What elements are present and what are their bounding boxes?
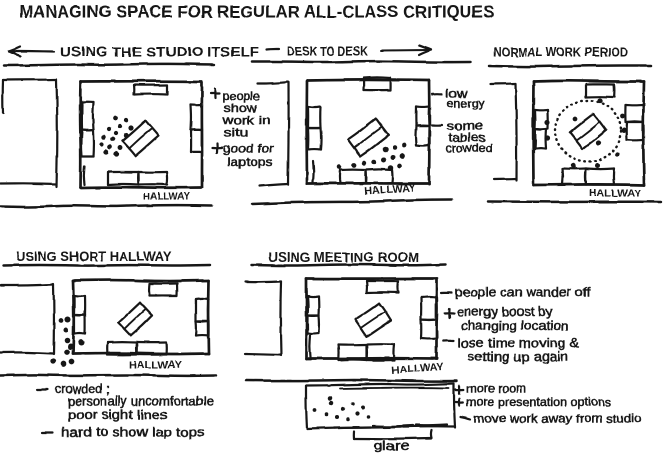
svg-text:move work away from studio: move work away from studio: [474, 412, 642, 426]
svg-text:setting up again: setting up again: [468, 350, 569, 364]
svg-text:more presentation options: more presentation options: [466, 395, 611, 409]
svg-text:good for: good for: [223, 142, 274, 156]
svg-text:changing location: changing location: [461, 319, 569, 333]
svg-text:HALLWAY: HALLWAY: [589, 188, 641, 200]
svg-text:personally uncomfortable: personally uncomfortable: [68, 395, 214, 409]
svg-text:USING THE STUDIO ITSELF: USING THE STUDIO ITSELF: [60, 44, 259, 60]
svg-text:HALLWAY: HALLWAY: [129, 359, 182, 371]
svg-text:lose time moving &: lose time moving &: [458, 337, 581, 351]
svg-text:more room: more room: [466, 382, 526, 396]
svg-text:glare: glare: [374, 439, 410, 453]
svg-text:hard to show lap tops: hard to show lap tops: [62, 426, 205, 440]
svg-text:laptops: laptops: [228, 155, 273, 169]
svg-text:USING SHORT HALLWAY: USING SHORT HALLWAY: [16, 249, 172, 264]
svg-text:energy boost by: energy boost by: [457, 305, 554, 319]
svg-text:DESK TO DESK: DESK TO DESK: [287, 45, 368, 59]
svg-text:USING MEETING ROOM: USING MEETING ROOM: [268, 250, 419, 265]
svg-text:NORMAL WORK PERIOD: NORMAL WORK PERIOD: [493, 45, 628, 60]
svg-text:MANAGING SPACE FOR REGULAR ALL: MANAGING SPACE FOR REGULAR ALL-CLASS CRI…: [19, 2, 494, 22]
svg-text:situ: situ: [224, 126, 249, 140]
svg-text:poor sight lines: poor sight lines: [68, 408, 168, 422]
svg-text:people can wander off: people can wander off: [455, 286, 591, 300]
svg-text:crowded: crowded: [446, 141, 493, 155]
svg-text:HALLWAY: HALLWAY: [144, 191, 190, 203]
svg-text:energy: energy: [447, 97, 485, 111]
